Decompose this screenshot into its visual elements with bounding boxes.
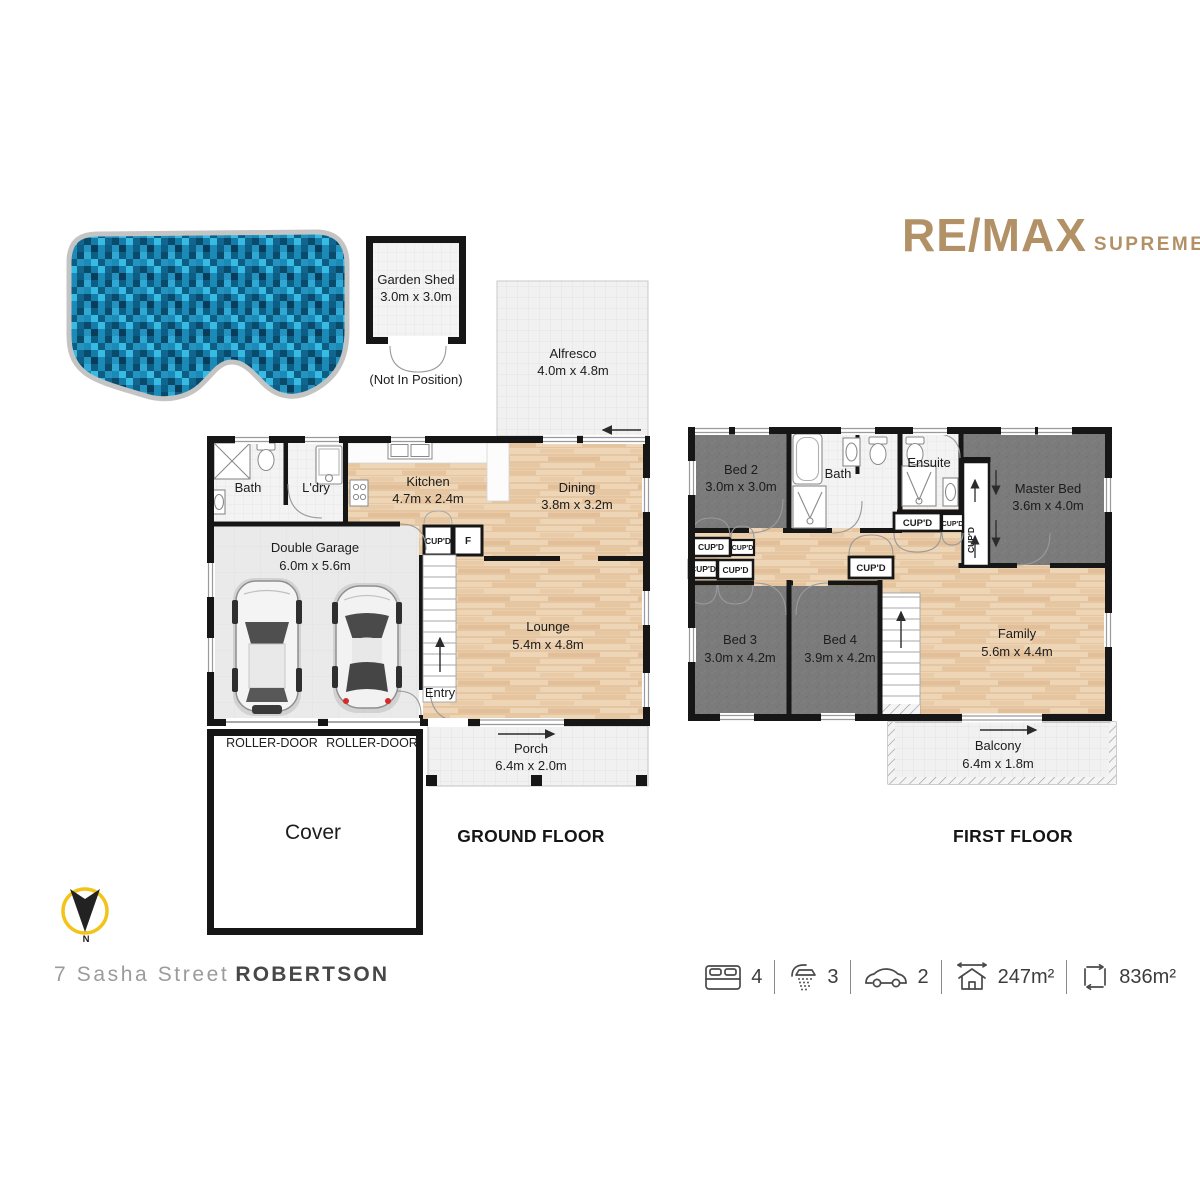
- fridge-label: F: [465, 536, 471, 547]
- remax-logo-main: RE/MAX: [902, 212, 1087, 258]
- dining-dims: 3.8m x 3.2m: [541, 497, 613, 512]
- ensuite-label: Ensuite: [907, 455, 950, 470]
- house-area-icon: [954, 961, 990, 993]
- stats-divider: [850, 960, 851, 994]
- cover-label: Cover: [285, 821, 341, 844]
- ground-floor-title: GROUND FLOOR: [411, 826, 651, 847]
- north-label: N: [83, 934, 90, 945]
- family-label: Family: [998, 626, 1037, 641]
- entry-label: Entry: [425, 685, 456, 700]
- property-address: 7 Sasha StreetROBERTSON: [54, 963, 389, 987]
- car-graphic: [232, 578, 302, 716]
- master-dims: 3.6m x 4.0m: [1012, 498, 1084, 513]
- stats-divider: [941, 960, 942, 994]
- remax-logo: RE/MAX SUPREME: [902, 212, 1200, 258]
- gf-ldry-label: L'dry: [302, 480, 330, 495]
- ff-staircase: [882, 593, 920, 718]
- roller-door-label: ROLLER-DOOR: [326, 736, 418, 750]
- floorplan-page: Garden Shed 3.0m x 3.0m (Not In Position…: [0, 0, 1200, 1200]
- porch-label: Porch: [514, 741, 548, 756]
- kitchen-dims: 4.7m x 2.4m: [392, 491, 464, 506]
- kitchen-sink: [388, 442, 432, 459]
- stats-divider: [1066, 960, 1067, 994]
- stat-bathrooms: 3: [787, 962, 838, 992]
- shower-icon: [787, 962, 819, 992]
- dining-label: Dining: [559, 480, 596, 495]
- cover-area: ROLLER-DOOR ROLLER-DOOR Cover: [211, 733, 420, 932]
- porch-area: Porch 6.4m x 2.0m: [426, 726, 648, 786]
- stat-land-area: 836m²: [1079, 963, 1176, 991]
- bed-icon: [703, 962, 743, 992]
- bed2-dims: 3.0m x 3.0m: [705, 479, 777, 494]
- gf-staircase: [423, 555, 456, 702]
- balcony-area: Balcony 6.4m x 1.8m: [888, 722, 1116, 784]
- floorplan-canvas: Garden Shed 3.0m x 3.0m (Not In Position…: [0, 0, 1200, 1200]
- stat-cars-value: 2: [917, 966, 928, 989]
- bed4-dims: 3.9m x 4.2m: [804, 650, 876, 665]
- lounge-dims: 5.4m x 4.8m: [512, 637, 584, 652]
- laundry-tub: [316, 446, 342, 484]
- cupboard-label: CUP'D: [942, 521, 964, 528]
- address-street: 7 Sasha Street: [54, 963, 229, 986]
- remax-logo-sub: SUPREME: [1094, 235, 1200, 254]
- address-suburb: ROBERTSON: [235, 963, 389, 986]
- stat-house-area-value: 247m²: [998, 966, 1055, 989]
- cupboard-label: CUP'D: [732, 545, 754, 552]
- shed-door-arc: [390, 346, 418, 372]
- shed-door-arc: [418, 346, 446, 372]
- north-compass: N: [63, 889, 107, 945]
- bed4-label: Bed 4: [823, 632, 857, 647]
- toilet-icon: [257, 443, 275, 471]
- garage-label: Double Garage: [271, 540, 359, 555]
- first-floor-plan: Balcony 6.4m x 1.8m: [687, 426, 1116, 784]
- shed-label: Garden Shed: [377, 272, 454, 287]
- toilet-icon: [869, 437, 887, 465]
- car-icon: [863, 964, 909, 990]
- stat-cars: 2: [863, 964, 928, 990]
- cupboard-label: CUP'D: [698, 542, 724, 552]
- kitchen-label: Kitchen: [406, 474, 449, 489]
- bed2-label: Bed 2: [724, 462, 758, 477]
- master-label: Master Bed: [1015, 481, 1081, 496]
- cupboard-label: CUP'D: [903, 518, 932, 529]
- shed-dims: 3.0m x 3.0m: [380, 289, 452, 304]
- cupboard-label: CUP'D: [425, 536, 451, 546]
- bed3-dims: 3.0m x 4.2m: [704, 650, 776, 665]
- stat-bedrooms: 4: [703, 962, 762, 992]
- first-floor-title: FIRST FLOOR: [893, 826, 1133, 847]
- alfresco-label: Alfresco: [550, 346, 597, 361]
- stat-house-area: 247m²: [954, 961, 1055, 993]
- swimming-pool: [69, 232, 347, 399]
- stat-bedrooms-value: 4: [751, 966, 762, 989]
- shed-door-opening: [388, 336, 448, 348]
- gf-bath-label: Bath: [235, 480, 262, 495]
- stats-divider: [774, 960, 775, 994]
- kitchen-bench-return: [487, 443, 509, 501]
- stove-icon: [350, 480, 368, 506]
- garage-dims: 6.0m x 5.6m: [279, 558, 351, 573]
- stat-bathrooms-value: 3: [827, 966, 838, 989]
- garden-shed: Garden Shed 3.0m x 3.0m (Not In Position…: [369, 240, 462, 388]
- lounge-label: Lounge: [526, 619, 569, 634]
- cupboard-label: CUP'D: [856, 563, 885, 574]
- roller-door-label: ROLLER-DOOR: [226, 736, 318, 750]
- car-graphic: [332, 583, 402, 713]
- ff-bath-label: Bath: [825, 466, 852, 481]
- alfresco-dims: 4.0m x 4.8m: [537, 363, 609, 378]
- porch-dims: 6.4m x 2.0m: [495, 758, 567, 773]
- shed-note: (Not In Position): [369, 372, 462, 387]
- property-stats: 4 3 2 247m²: [703, 954, 1176, 1000]
- stat-land-area-value: 836m²: [1119, 966, 1176, 989]
- family-dims: 5.6m x 4.4m: [981, 644, 1053, 659]
- balcony-dims: 6.4m x 1.8m: [962, 756, 1034, 771]
- bed3-label: Bed 3: [723, 632, 757, 647]
- balcony-label: Balcony: [975, 738, 1022, 753]
- land-area-icon: [1079, 963, 1111, 991]
- cupboard-label: CUP'D: [722, 565, 748, 575]
